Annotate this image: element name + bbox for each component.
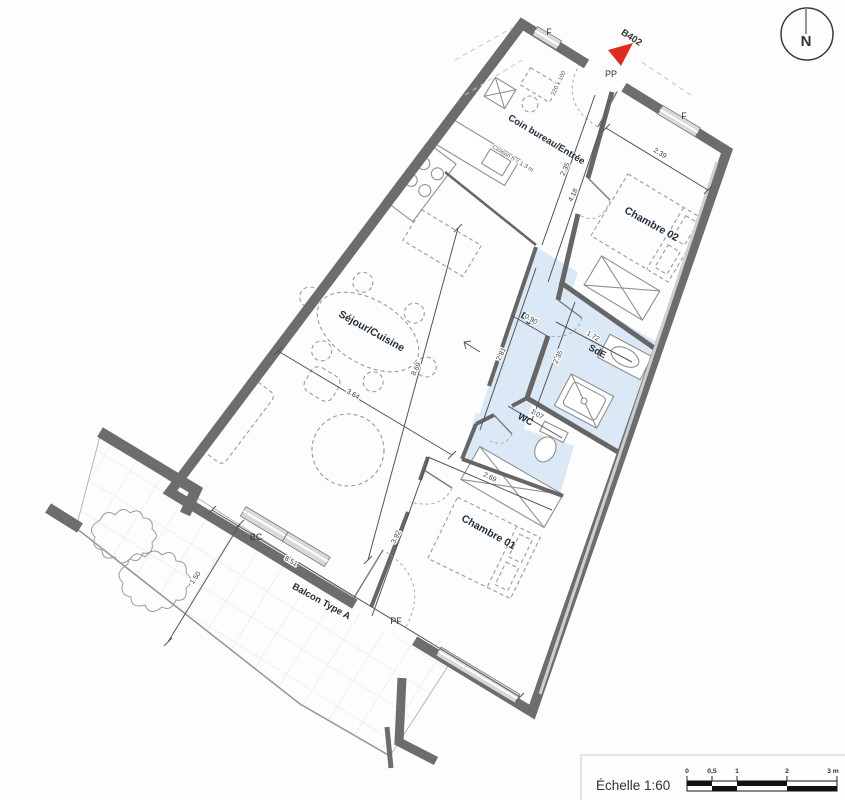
duct [484,77,516,108]
desk-chair [522,96,538,112]
room-label-living: Séjour/Cuisine [336,308,406,354]
balcony-area [76,436,452,756]
entrance-door-label: PP [605,69,617,79]
desk [520,68,559,103]
sofa [200,378,275,465]
dim-living-l: 8.69 [411,362,423,377]
unit-pointer [608,43,633,66]
scale-tick-2: 2 [785,768,789,775]
window-label-1: F [546,27,552,37]
room-label-bedroom2: Chambre 02 [622,205,681,245]
armchair [301,364,343,404]
room-label-bedroom1: Chambre 01 [459,513,518,553]
scale-bar: 0 0,5 1 2 3 m [685,768,839,791]
dim-entry-depth: 2.35 [560,162,572,177]
door-size-note: 220 x 100 [551,70,568,97]
scale-tick-0: 0 [685,768,689,775]
scale-tick-3m: 3 m [827,768,839,775]
north-compass: N [781,8,833,60]
scale-tick-05: 0,5 [707,768,717,775]
french-door-label: PF [390,616,402,626]
rug [312,414,384,486]
window-label-2: F [681,111,687,121]
bay-window-label: BC [250,532,263,542]
scale-title: Échelle 1:60 [596,778,670,793]
dim-bedroom1-l: 3.92 [391,530,403,545]
north-label: N [801,33,812,50]
floor-plan-svg: F F PP BC PF B402 220 x 100 Cloison h = … [0,0,845,800]
title-block: Échelle 1:60 0 0,5 1 2 3 m [581,755,845,800]
scale-tick-1: 1 [735,768,739,775]
dim-bedroom2-w: 2.39 [652,147,667,160]
